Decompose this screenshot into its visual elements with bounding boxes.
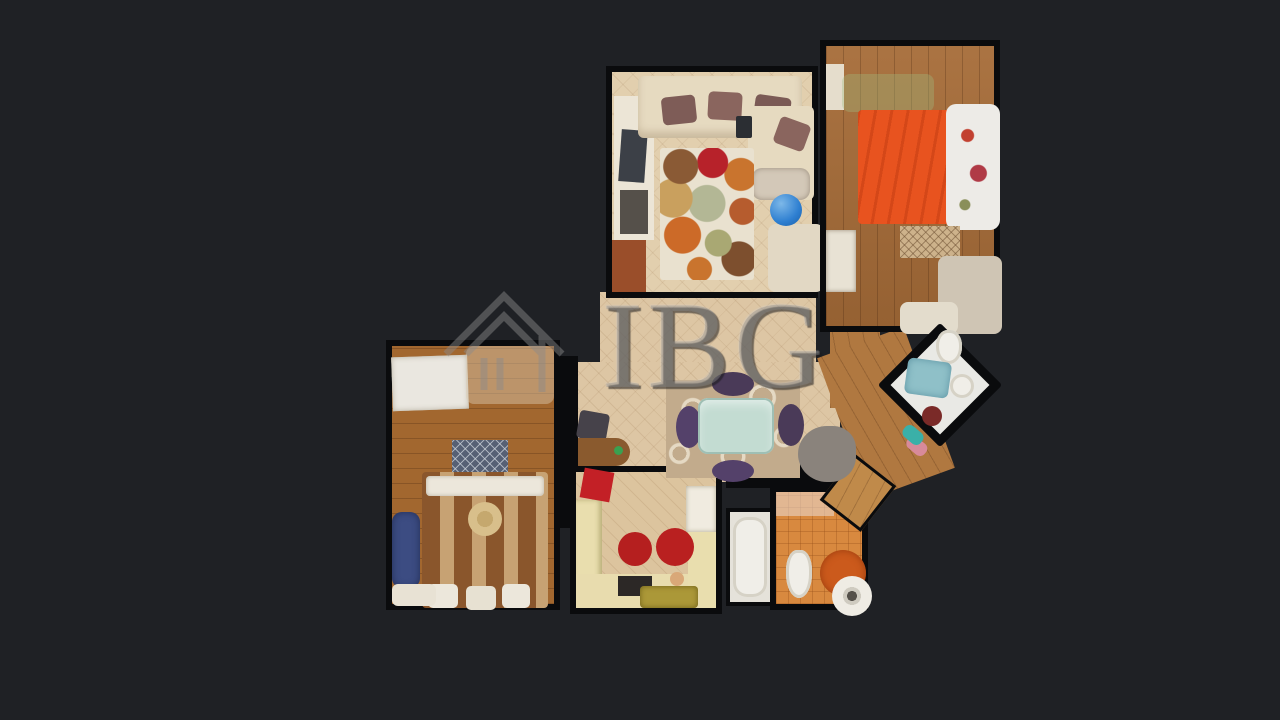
nightstand [826,230,856,292]
clothes-clutter-top [842,74,934,112]
white-bag [392,584,436,606]
blue-clothes [392,512,420,588]
circle-pattern-rug [660,148,754,280]
red-chair [580,468,615,503]
pillow [661,94,698,125]
remote-tray [736,116,752,138]
exercise-ball [770,194,802,226]
toilet [786,550,812,598]
bag-clutter [620,190,648,234]
toilet [936,330,962,364]
floorplan-image: IBG [0,0,1280,720]
living-room [606,66,818,298]
red-stool [656,528,694,566]
bathtub-towels [904,357,953,399]
white-floral-duvet [946,104,1000,230]
shell-ornament [670,572,684,586]
bed-foot-pillow [502,584,530,608]
bedroom-main [820,40,1000,332]
washing-machine [832,576,872,616]
gold-tray [640,586,698,608]
clothes-pile [798,426,856,482]
bathtub [733,517,767,597]
diamond-rug [900,226,960,258]
bed-foot-pillow [466,586,496,610]
gray-diamond-rug [452,440,508,476]
straw-hat [468,502,502,536]
dining-chair [712,460,754,482]
desk-plant [614,446,623,455]
red-stool [618,532,652,566]
red-bucket [922,406,942,426]
bed-pillow-band [426,476,544,496]
bathtub-nook [726,508,774,606]
sink [950,374,974,398]
watermark-text: IBG [602,284,828,408]
house-outline-icon [438,284,570,404]
fridge [686,486,716,532]
